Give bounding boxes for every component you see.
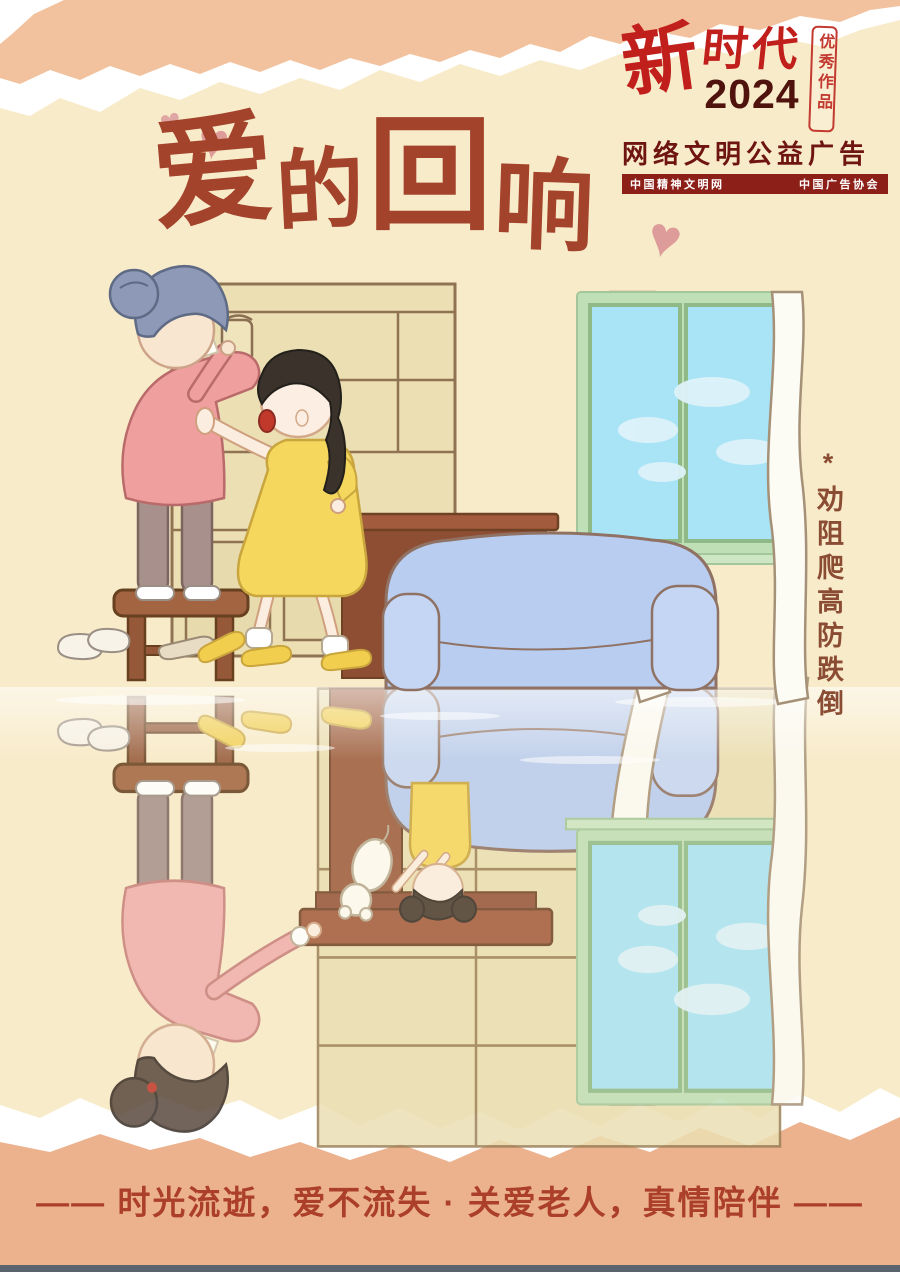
brand-year: 2024 [704, 74, 799, 115]
title-char-1: 爱 [147, 105, 279, 237]
org-left: 中国精神文明网 [630, 176, 725, 192]
campaign-badge: 新 时代 2024 优秀作品 网络文明公益广告 中国精神文明网 中国广告协会 [622, 26, 888, 194]
badge-brand-row: 新 时代 2024 优秀作品 [622, 26, 888, 130]
living-room-illustration [0, 250, 900, 1160]
bottom-slogan: —— 时光流逝，爱不流失 · 关爱老人，真情陪伴 —— [0, 1176, 900, 1224]
poster: 新 时代 2024 优秀作品 网络文明公益广告 中国精神文明网 中国广告协会 爱… [0, 0, 900, 1272]
brand-char-xin: 新 [618, 21, 703, 99]
org-right: 中国广告协会 [799, 176, 880, 192]
organizations-bar: 中国精神文明网 中国广告协会 [622, 174, 888, 194]
bottom-edge-bar [0, 1265, 900, 1272]
title-char-4: 响 [492, 154, 595, 257]
excellence-seal: 优秀作品 [808, 26, 838, 133]
title-char-3: 回 [368, 114, 492, 238]
title-char-2: 的 [274, 144, 367, 236]
poster-title: 爱 的 回 响 [152, 110, 594, 256]
campaign-name: 网络文明公益广告 [622, 134, 888, 171]
brand-column: 时代 2024 [702, 26, 802, 115]
torn-corner-white [0, 0, 64, 44]
brand-shidai: 时代 [700, 26, 805, 72]
sofa [383, 533, 718, 690]
side-caption: *劝阻爬高防跌倒 [809, 448, 848, 723]
